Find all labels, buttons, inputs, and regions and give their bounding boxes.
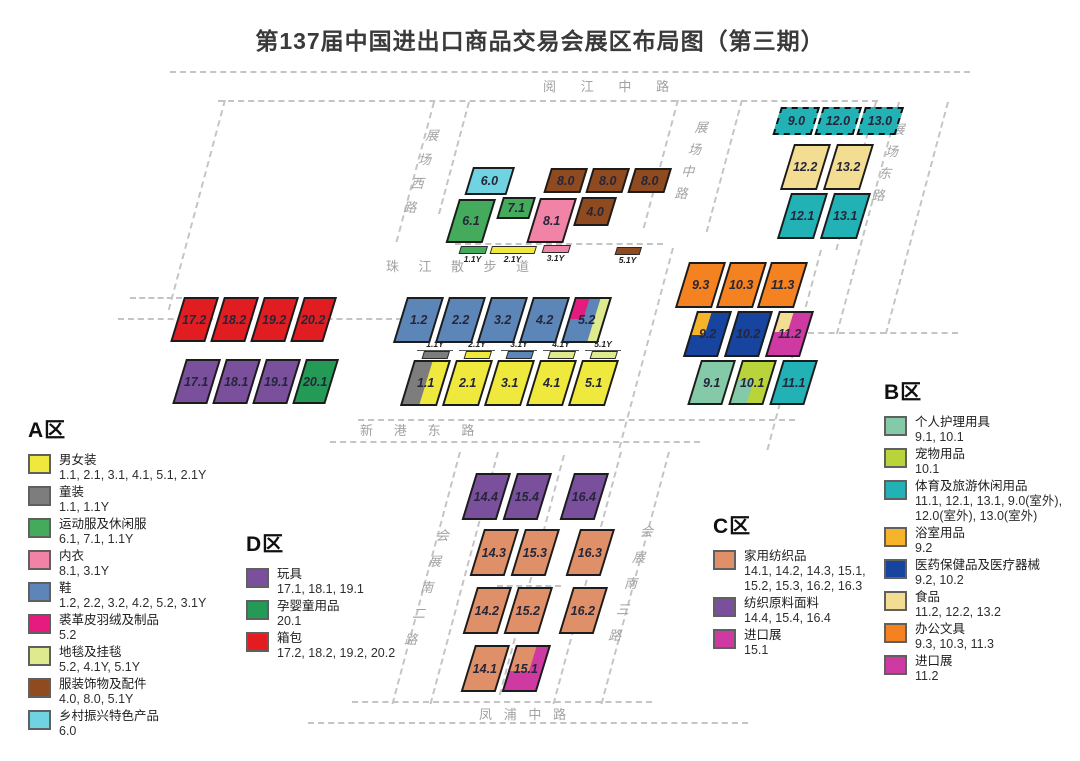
legend-item-codes: 11.1, 12.1, 13.1, 9.0(室外), 12.0(室外), 13.… [915, 494, 1072, 524]
hall-number: 12.2 [793, 160, 817, 174]
legend-item: 服装饰物及配件4.0, 8.0, 5.1Y [28, 677, 243, 707]
legend-item: 孕婴童用品20.1 [246, 599, 431, 629]
legend-item: 进口展15.1 [713, 628, 885, 658]
legend-item-text: 童装1.1, 1.1Y [59, 485, 109, 515]
hall-number: 13.1 [833, 209, 857, 223]
legend-zone-title: D区 [246, 528, 431, 558]
hall-number: 15.4 [515, 490, 539, 504]
legend-item-name: 个人护理用具 [915, 415, 990, 430]
color-swatch [28, 710, 51, 730]
hall-20.2: 20.2 [290, 297, 337, 342]
legend-zone-title: B区 [884, 376, 1072, 406]
hall-5.2: 5.2 [561, 297, 612, 343]
hall-number: 9.2 [699, 327, 716, 341]
legend-item-name: 食品 [915, 590, 1001, 605]
hall-number: 13.2 [836, 160, 860, 174]
road-label-zhanchang_zhong: 展 场 中 路 [672, 117, 712, 205]
legend-item: 食品11.2, 12.2, 13.2 [884, 590, 1072, 620]
hall-number: 15.2 [516, 604, 540, 618]
road-dashed-line [643, 100, 679, 228]
hall-number: 14.4 [474, 490, 498, 504]
hall-number: 11.3 [771, 278, 794, 292]
legend-item-name: 童装 [59, 485, 109, 500]
legend-item-codes: 11.2 [915, 669, 953, 684]
road-label-xingang: 新港东路 [360, 420, 495, 439]
hall-number: 15.1 [514, 662, 538, 676]
legend-item-text: 箱包17.2, 18.2, 19.2, 20.2 [277, 631, 395, 661]
hall-6.1: 6.1 [446, 199, 496, 243]
hall-9.2: 9.2 [683, 311, 732, 357]
hall-number: 6.0 [481, 174, 498, 188]
legend-zone-a: A区男女装1.1, 2.1, 3.1, 4.1, 5.1, 2.1Y童装1.1,… [28, 414, 243, 741]
color-swatch [884, 623, 907, 643]
hall-number: 10.1 [740, 376, 764, 390]
hall-8.0: 8.0 [543, 168, 588, 193]
color-swatch [713, 550, 736, 570]
hall-number: 4.0 [586, 205, 603, 219]
road-dashed-line [170, 71, 970, 73]
road-dashed-line [808, 332, 958, 334]
legend-item-name: 内衣 [59, 549, 109, 564]
color-swatch [884, 559, 907, 579]
legend-item-codes: 9.1, 10.1 [915, 430, 990, 445]
hall-number: 2.1 [459, 376, 476, 390]
hall-bar-4.1Y [548, 351, 576, 359]
hall-10.2: 10.2 [724, 311, 773, 357]
legend-item-codes: 9.2 [915, 541, 965, 556]
hall-bar-label-2.1Y: 2.1Y [485, 255, 540, 264]
color-swatch [246, 632, 269, 652]
hall-number: 17.1 [184, 375, 208, 389]
legend-item-name: 浴室用品 [915, 526, 965, 541]
hall-bar-5.1Y [590, 351, 618, 359]
legend-item-codes: 9.3, 10.3, 11.3 [915, 637, 994, 652]
hall-bar-label-2.1Y: 2.1Y [459, 340, 495, 351]
road-label-huizhan_nan_san: 会 展 南 三 路 [605, 519, 658, 649]
legend-item: 运动服及休闲服6.1, 7.1, 1.1Y [28, 517, 243, 547]
legend-item: 宠物用品10.1 [884, 447, 1072, 477]
legend-item-text: 孕婴童用品20.1 [277, 599, 340, 629]
hall-bar-1.1Y [459, 246, 488, 254]
hall-number: 8.0 [641, 174, 658, 188]
legend-item: 裘革皮羽绒及制品5.2 [28, 613, 243, 643]
hall-number: 16.2 [571, 604, 595, 618]
legend-item-text: 进口展15.1 [744, 628, 782, 658]
legend-item-name: 体育及旅游休闲用品 [915, 479, 1072, 494]
road-label-zhanchang_xi: 展 场 西 路 [401, 124, 443, 220]
hall-number: 14.1 [473, 662, 497, 676]
hall-bar-2.1Y [490, 246, 537, 254]
legend-item-name: 家用纺织品 [744, 549, 885, 564]
legend-item-name: 乡村振兴特色产品 [59, 709, 159, 724]
color-swatch [884, 527, 907, 547]
road-label-fengpu: 凤浦中路 [479, 704, 578, 723]
road-label-yuejiang: 阅江中路 [543, 76, 694, 95]
hall-16.2: 16.2 [559, 587, 608, 634]
hall-number: 9.3 [692, 278, 709, 292]
page-title: 第137届中国进出口商品交易会展区布局图（第三期） [0, 22, 1080, 56]
hall-number: 16.4 [572, 490, 596, 504]
legend-item-text: 乡村振兴特色产品6.0 [59, 709, 159, 739]
legend-item: 鞋1.2, 2.2, 3.2, 4.2, 5.2, 3.1Y [28, 581, 243, 611]
legend-item: 男女装1.1, 2.1, 3.1, 4.1, 5.1, 2.1Y [28, 453, 243, 483]
legend-item-codes: 17.2, 18.2, 19.2, 20.2 [277, 646, 395, 661]
color-swatch [28, 646, 51, 666]
hall-bar-label-1.1Y: 1.1Y [417, 340, 453, 351]
hall-number: 4.1 [543, 376, 560, 390]
legend-item-name: 运动服及休闲服 [59, 517, 147, 532]
hall-number: 9.1 [703, 376, 720, 390]
hall-number: 9.0 [788, 114, 805, 128]
legend-item-name: 进口展 [915, 654, 953, 669]
legend-item: 玩具17.1, 18.1, 19.1 [246, 567, 431, 597]
hall-bar-3.1Y [506, 351, 534, 359]
hall-number: 18.2 [222, 313, 246, 327]
legend-item-text: 宠物用品10.1 [915, 447, 965, 477]
hall-number: 20.2 [301, 313, 325, 327]
road-dashed-line [168, 100, 226, 310]
legend-item-name: 裘革皮羽绒及制品 [59, 613, 159, 628]
legend-item: 办公文具9.3, 10.3, 11.3 [884, 622, 1072, 652]
hall-15.4: 15.4 [503, 473, 552, 520]
canton-fair-layout-map: 第137届中国进出口商品交易会展区布局图（第三期） 阅江中路展 场 西 路展 场… [0, 0, 1080, 761]
legend-zone-title: C区 [713, 510, 885, 540]
hall-8.0: 8.0 [627, 168, 672, 193]
hall-number: 19.1 [264, 375, 288, 389]
hall-number: 18.1 [224, 375, 248, 389]
color-swatch [246, 600, 269, 620]
hall-16.3: 16.3 [566, 529, 615, 576]
legend-item: 地毯及挂毯5.2, 4.1Y, 5.1Y [28, 645, 243, 675]
hall-number: 14.2 [475, 604, 499, 618]
hall-number: 19.2 [262, 313, 286, 327]
hall-number: 12.0 [826, 114, 850, 128]
hall-15.3: 15.3 [511, 529, 560, 576]
hall-11.2: 11.2 [765, 311, 814, 357]
hall-number: 10.2 [736, 327, 760, 341]
hall-number: 8.1 [543, 214, 560, 228]
legend-item-codes: 5.2 [59, 628, 159, 643]
road-dashed-line [438, 102, 470, 214]
legend-item-codes: 1.1, 2.1, 3.1, 4.1, 5.1, 2.1Y [59, 468, 206, 483]
hall-number: 6.1 [462, 214, 479, 228]
hall-20.1: 20.1 [292, 359, 339, 404]
hall-bar-label-5.1Y: 5.1Y [610, 256, 645, 265]
hall-number: 14.3 [482, 546, 506, 560]
legend-item: 乡村振兴特色产品6.0 [28, 709, 243, 739]
legend-item-codes: 1.2, 2.2, 3.2, 4.2, 5.2, 3.1Y [59, 596, 206, 611]
legend-item-codes: 6.1, 7.1, 1.1Y [59, 532, 147, 547]
hall-16.4: 16.4 [560, 473, 609, 520]
legend-item-text: 男女装1.1, 2.1, 3.1, 4.1, 5.1, 2.1Y [59, 453, 206, 483]
legend-item-name: 男女装 [59, 453, 206, 468]
legend-item-text: 内衣8.1, 3.1Y [59, 549, 109, 579]
color-swatch [28, 582, 51, 602]
hall-number: 4.2 [536, 313, 553, 327]
hall-13.2: 13.2 [823, 144, 874, 190]
hall-number: 8.0 [557, 174, 574, 188]
legend-item: 个人护理用具9.1, 10.1 [884, 415, 1072, 445]
hall-11.1: 11.1 [769, 360, 818, 405]
hall-number: 1.1 [417, 376, 434, 390]
legend-item-text: 玩具17.1, 18.1, 19.1 [277, 567, 364, 597]
hall-number: 5.2 [578, 313, 595, 327]
legend-zone-c: C区家用纺织品14.1, 14.2, 14.3, 15.1, 15.2, 15.… [713, 510, 885, 660]
hall-number: 11.1 [782, 376, 805, 390]
hall-8.1: 8.1 [526, 198, 577, 243]
road-dashed-line [330, 441, 700, 443]
legend-item-text: 浴室用品9.2 [915, 526, 965, 556]
legend-item: 纺织原料面料14.4, 15.4, 16.4 [713, 596, 885, 626]
road-dashed-line [130, 297, 182, 299]
hall-number: 8.0 [599, 174, 616, 188]
legend-item-name: 鞋 [59, 581, 206, 596]
hall-5.1: 5.1 [568, 360, 619, 406]
hall-9.1: 9.1 [687, 360, 736, 405]
hall-number: 3.1 [501, 376, 518, 390]
legend-item-name: 进口展 [744, 628, 782, 643]
hall-number: 17.2 [182, 313, 206, 327]
hall-7.1: 7.1 [496, 197, 536, 219]
color-swatch [884, 416, 907, 436]
color-swatch [884, 480, 907, 500]
legend-item: 家用纺织品14.1, 14.2, 14.3, 15.1, 15.2, 15.3,… [713, 549, 885, 594]
color-swatch [28, 614, 51, 634]
legend-item-text: 地毯及挂毯5.2, 4.1Y, 5.1Y [59, 645, 140, 675]
hall-4.0: 4.0 [573, 197, 617, 226]
color-swatch [713, 629, 736, 649]
legend-item-name: 孕婴童用品 [277, 599, 340, 614]
hall-number: 5.1 [585, 376, 602, 390]
hall-10.1: 10.1 [728, 360, 777, 405]
legend-zone-d: D区玩具17.1, 18.1, 19.1孕婴童用品20.1箱包17.2, 18.… [246, 528, 431, 663]
legend-item: 医药保健品及医疗器械9.2, 10.2 [884, 558, 1072, 588]
hall-bar-3.1Y [542, 245, 571, 253]
legend-item-codes: 10.1 [915, 462, 965, 477]
hall-6.0: 6.0 [464, 167, 515, 195]
hall-bar-5.1Y [615, 247, 642, 255]
legend-item-text: 个人护理用具9.1, 10.1 [915, 415, 990, 445]
road-dashed-line [352, 701, 652, 703]
color-swatch [884, 448, 907, 468]
legend-item-name: 办公文具 [915, 622, 994, 637]
hall-number: 13.0 [868, 114, 892, 128]
legend-item-text: 纺织原料面料14.4, 15.4, 16.4 [744, 596, 831, 626]
legend-item-name: 纺织原料面料 [744, 596, 831, 611]
legend-item-name: 宠物用品 [915, 447, 965, 462]
legend-item-codes: 17.1, 18.1, 19.1 [277, 582, 364, 597]
legend-item-codes: 14.4, 15.4, 16.4 [744, 611, 831, 626]
legend-item-codes: 20.1 [277, 614, 340, 629]
legend-item-text: 服装饰物及配件4.0, 8.0, 5.1Y [59, 677, 147, 707]
road-dashed-line [218, 100, 878, 102]
legend-item-name: 服装饰物及配件 [59, 677, 147, 692]
legend-item-name: 地毯及挂毯 [59, 645, 140, 660]
legend-item-text: 办公文具9.3, 10.3, 11.3 [915, 622, 994, 652]
color-swatch [713, 597, 736, 617]
hall-bar-label-4.1Y: 4.1Y [543, 340, 579, 351]
hall-bar-2.1Y [464, 351, 492, 359]
hall-bar-label-5.1Y: 5.1Y [585, 340, 621, 351]
legend-item-text: 裘革皮羽绒及制品5.2 [59, 613, 159, 643]
hall-12.0: 12.0 [814, 107, 862, 135]
legend-item-text: 鞋1.2, 2.2, 3.2, 4.2, 5.2, 3.1Y [59, 581, 206, 611]
color-swatch [28, 486, 51, 506]
legend-item-codes: 5.2, 4.1Y, 5.1Y [59, 660, 140, 675]
legend-item-codes: 14.1, 14.2, 14.3, 15.1, 15.2, 15.3, 16.2… [744, 564, 885, 594]
hall-8.0: 8.0 [585, 168, 630, 193]
legend-item-codes: 8.1, 3.1Y [59, 564, 109, 579]
legend-item-name: 箱包 [277, 631, 395, 646]
legend-item-name: 医药保健品及医疗器械 [915, 558, 1040, 573]
legend-item: 进口展11.2 [884, 654, 1072, 684]
legend-item-text: 体育及旅游休闲用品11.1, 12.1, 13.1, 9.0(室外), 12.0… [915, 479, 1072, 524]
legend-item: 童装1.1, 1.1Y [28, 485, 243, 515]
color-swatch [246, 568, 269, 588]
legend-zone-b: B区个人护理用具9.1, 10.1宠物用品10.1体育及旅游休闲用品11.1, … [884, 376, 1072, 686]
legend-item: 体育及旅游休闲用品11.1, 12.1, 13.1, 9.0(室外), 12.0… [884, 479, 1072, 524]
hall-number: 15.3 [523, 546, 547, 560]
hall-bar-label-3.1Y: 3.1Y [501, 340, 537, 351]
color-swatch [884, 591, 907, 611]
road-dashed-line [706, 100, 743, 232]
hall-number: 20.1 [303, 375, 327, 389]
hall-bar-1.1Y [422, 351, 450, 359]
color-swatch [884, 655, 907, 675]
hall-number: 3.2 [494, 313, 511, 327]
legend-item: 浴室用品9.2 [884, 526, 1072, 556]
hall-number: 10.3 [729, 278, 753, 292]
legend-zone-title: A区 [28, 414, 243, 444]
legend-item-text: 进口展11.2 [915, 654, 953, 684]
legend-item-codes: 1.1, 1.1Y [59, 500, 109, 515]
hall-number: 7.1 [507, 201, 524, 215]
hall-15.2: 15.2 [504, 587, 553, 634]
legend-item-codes: 15.1 [744, 643, 782, 658]
legend-item-codes: 9.2, 10.2 [915, 573, 1040, 588]
hall-bar-label-3.1Y: 3.1Y [537, 254, 574, 263]
legend-item: 箱包17.2, 18.2, 19.2, 20.2 [246, 631, 431, 661]
color-swatch [28, 678, 51, 698]
hall-number: 16.3 [578, 546, 602, 560]
legend-item-codes: 4.0, 8.0, 5.1Y [59, 692, 147, 707]
legend-item-text: 食品11.2, 12.2, 13.2 [915, 590, 1001, 620]
color-swatch [28, 518, 51, 538]
hall-number: 1.2 [410, 313, 427, 327]
hall-12.2: 12.2 [780, 144, 831, 190]
legend-item-name: 玩具 [277, 567, 364, 582]
legend-item-text: 运动服及休闲服6.1, 7.1, 1.1Y [59, 517, 147, 547]
legend-item: 内衣8.1, 3.1Y [28, 549, 243, 579]
hall-9.0: 9.0 [772, 107, 820, 135]
legend-item-codes: 6.0 [59, 724, 159, 739]
hall-12.1: 12.1 [777, 193, 828, 239]
road-dashed-line [618, 248, 674, 448]
color-swatch [28, 454, 51, 474]
hall-number: 11.2 [778, 327, 801, 341]
legend-item-text: 家用纺织品14.1, 14.2, 14.3, 15.1, 15.2, 15.3,… [744, 549, 885, 594]
hall-number: 2.2 [452, 313, 469, 327]
legend-item-text: 医药保健品及医疗器械9.2, 10.2 [915, 558, 1040, 588]
color-swatch [28, 550, 51, 570]
hall-number: 12.1 [790, 209, 814, 223]
legend-item-codes: 11.2, 12.2, 13.2 [915, 605, 1001, 620]
